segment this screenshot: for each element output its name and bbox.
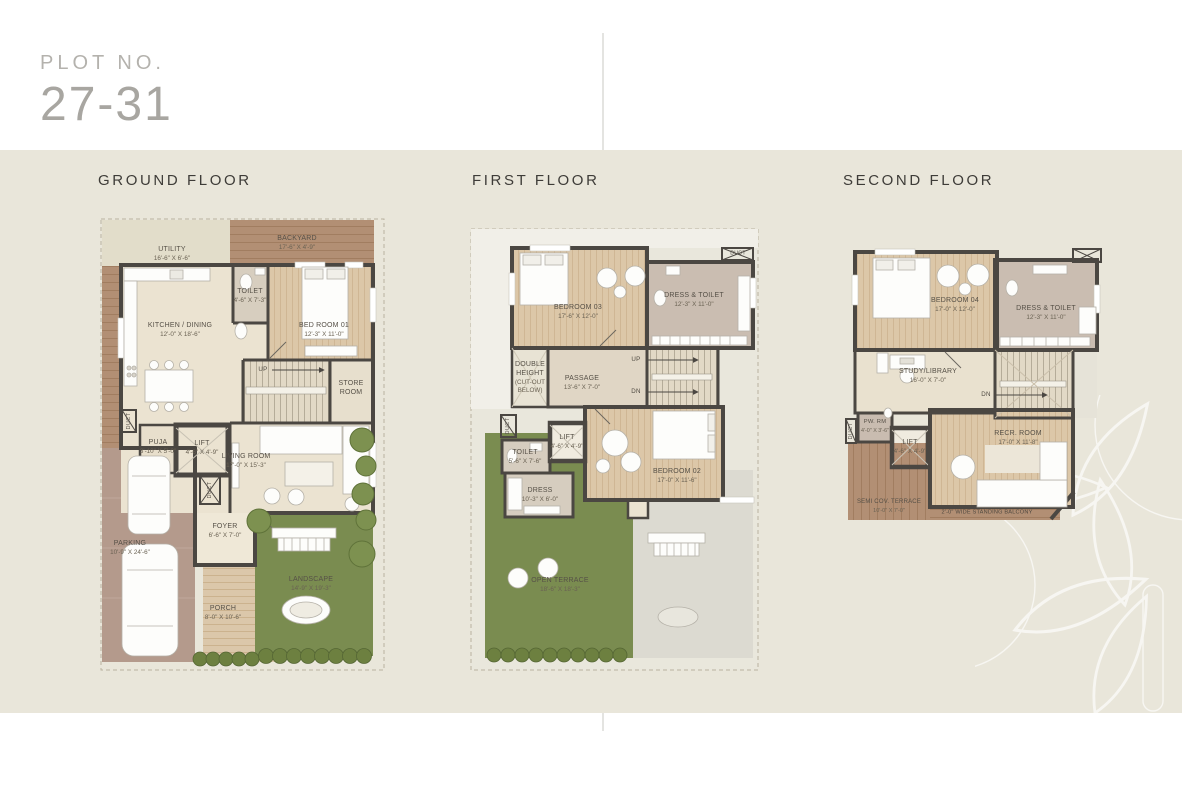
duct-label-gf-left: DUCT — [126, 413, 132, 430]
second-floor-svg — [845, 245, 1105, 530]
first-floor-plan: BEDROOM 0317'-6" X 12'-0" DRESS & TOILET… — [470, 228, 760, 673]
duct-label-gf-mid: DUCT — [207, 482, 213, 499]
floor-title-second: SECOND FLOOR — [843, 172, 994, 189]
ground-floor-svg — [100, 218, 385, 673]
duct-label-ff-left: DUCT — [505, 418, 511, 435]
plot-number: 27-31 — [40, 77, 173, 132]
first-floor-svg — [470, 228, 760, 673]
floor-title-ground: GROUND FLOOR — [98, 172, 252, 189]
plot-header: PLOT NO. 27-31 — [40, 52, 173, 132]
duct-label-sf-left: DUCT — [848, 423, 854, 440]
ground-floor-plan: UTILITY16'-6" X 6'-6" BACKYARD17'-6" X 4… — [100, 218, 385, 673]
floor-title-first: FIRST FLOOR — [472, 172, 600, 189]
floor-plan-page: { "header": { "plot_label": "PLOT NO.", … — [0, 0, 1200, 800]
second-floor-plan: BEDROOM 0417'-0" X 12'-0" DRESS & TOILET… — [845, 245, 1105, 530]
plot-label: PLOT NO. — [40, 52, 173, 75]
